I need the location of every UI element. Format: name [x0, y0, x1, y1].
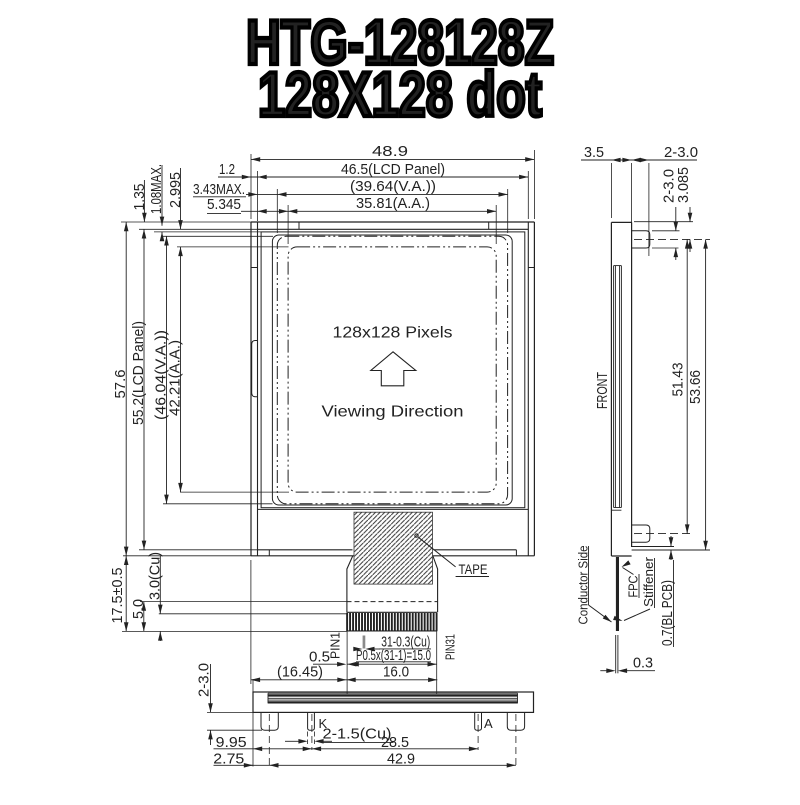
svg-text:46.5(LCD Panel): 46.5(LCD Panel): [341, 161, 445, 178]
svg-text:55.2(LCD Panel): 55.2(LCD Panel): [130, 321, 147, 425]
svg-text:1.35: 1.35: [131, 184, 148, 211]
svg-text:2.75: 2.75: [213, 751, 244, 768]
svg-text:PIN1: PIN1: [329, 632, 343, 659]
svg-text:51.43: 51.43: [670, 363, 687, 397]
svg-text:2-3.0: 2-3.0: [664, 144, 698, 161]
svg-text:9.95: 9.95: [216, 734, 247, 751]
svg-text:35.81(A.A.): 35.81(A.A.): [356, 195, 430, 212]
svg-text:A: A: [484, 716, 493, 731]
svg-text:42.9: 42.9: [387, 751, 415, 768]
svg-text:P0.5x(31-1)=15.0: P0.5x(31-1)=15.0: [356, 647, 431, 664]
svg-text:1.2: 1.2: [219, 161, 235, 178]
svg-text:0.3: 0.3: [633, 655, 653, 672]
svg-text:(39.64(V.A.)): (39.64(V.A.)): [350, 178, 436, 195]
svg-text:17.5±0.5: 17.5±0.5: [109, 568, 126, 624]
svg-text:16.0: 16.0: [383, 663, 409, 680]
svg-text:FRONT: FRONT: [594, 372, 611, 409]
svg-text:TAPE: TAPE: [459, 562, 488, 577]
svg-text:57.6: 57.6: [112, 370, 129, 399]
svg-text:53.66: 53.66: [687, 370, 704, 404]
svg-text:2.995: 2.995: [167, 172, 184, 208]
svg-text:3.5: 3.5: [584, 144, 604, 161]
svg-text:48.9: 48.9: [372, 143, 408, 160]
svg-text:PIN31: PIN31: [444, 634, 458, 660]
svg-text:5.345: 5.345: [207, 196, 241, 213]
svg-text:128x128 Pixels: 128x128 Pixels: [333, 325, 453, 342]
svg-text:1.08MAX.: 1.08MAX.: [148, 164, 165, 214]
svg-text:128X128 dot: 128X128 dot: [258, 60, 542, 130]
svg-text:3.085: 3.085: [675, 167, 692, 203]
svg-text:2-3.0: 2-3.0: [196, 663, 213, 697]
svg-text:5.0: 5.0: [130, 599, 147, 619]
svg-text:Viewing Direction: Viewing Direction: [322, 403, 464, 420]
svg-text:Stiffener: Stiffener: [642, 557, 656, 607]
svg-text:3.0(Cu): 3.0(Cu): [147, 552, 164, 600]
svg-text:(16.45): (16.45): [277, 663, 323, 680]
svg-text:FPC: FPC: [627, 576, 641, 598]
svg-text:28.5: 28.5: [381, 734, 409, 751]
svg-text:42.21(A.A.): 42.21(A.A.): [167, 340, 184, 416]
